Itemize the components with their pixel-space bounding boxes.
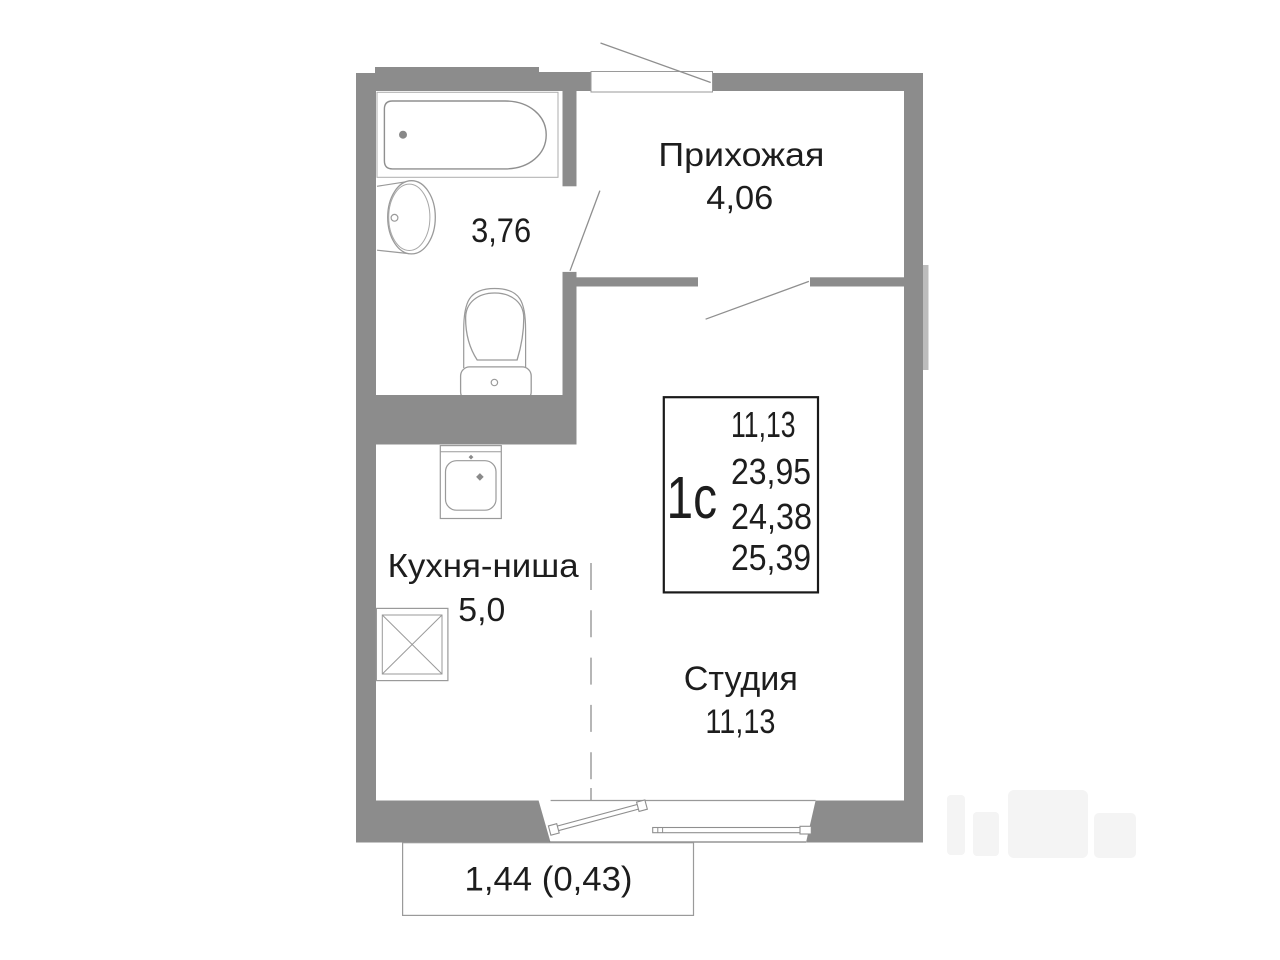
svg-text:Кухня-ниша: Кухня-ниша [388,547,580,584]
svg-text:Студия: Студия [684,660,798,698]
svg-text:24,38: 24,38 [731,496,812,537]
svg-text:11,13: 11,13 [731,404,796,445]
svg-text:11,13: 11,13 [705,703,775,741]
svg-text:4,06: 4,06 [706,179,773,216]
svg-text:Прихожая: Прихожая [658,136,824,173]
svg-text:1,44 (0,43): 1,44 (0,43) [465,861,633,899]
svg-text:1с: 1с [667,465,718,531]
svg-text:3,76: 3,76 [471,212,531,250]
svg-text:25,39: 25,39 [731,537,811,578]
svg-text:23,95: 23,95 [731,451,811,492]
svg-text:5,0: 5,0 [458,591,505,628]
